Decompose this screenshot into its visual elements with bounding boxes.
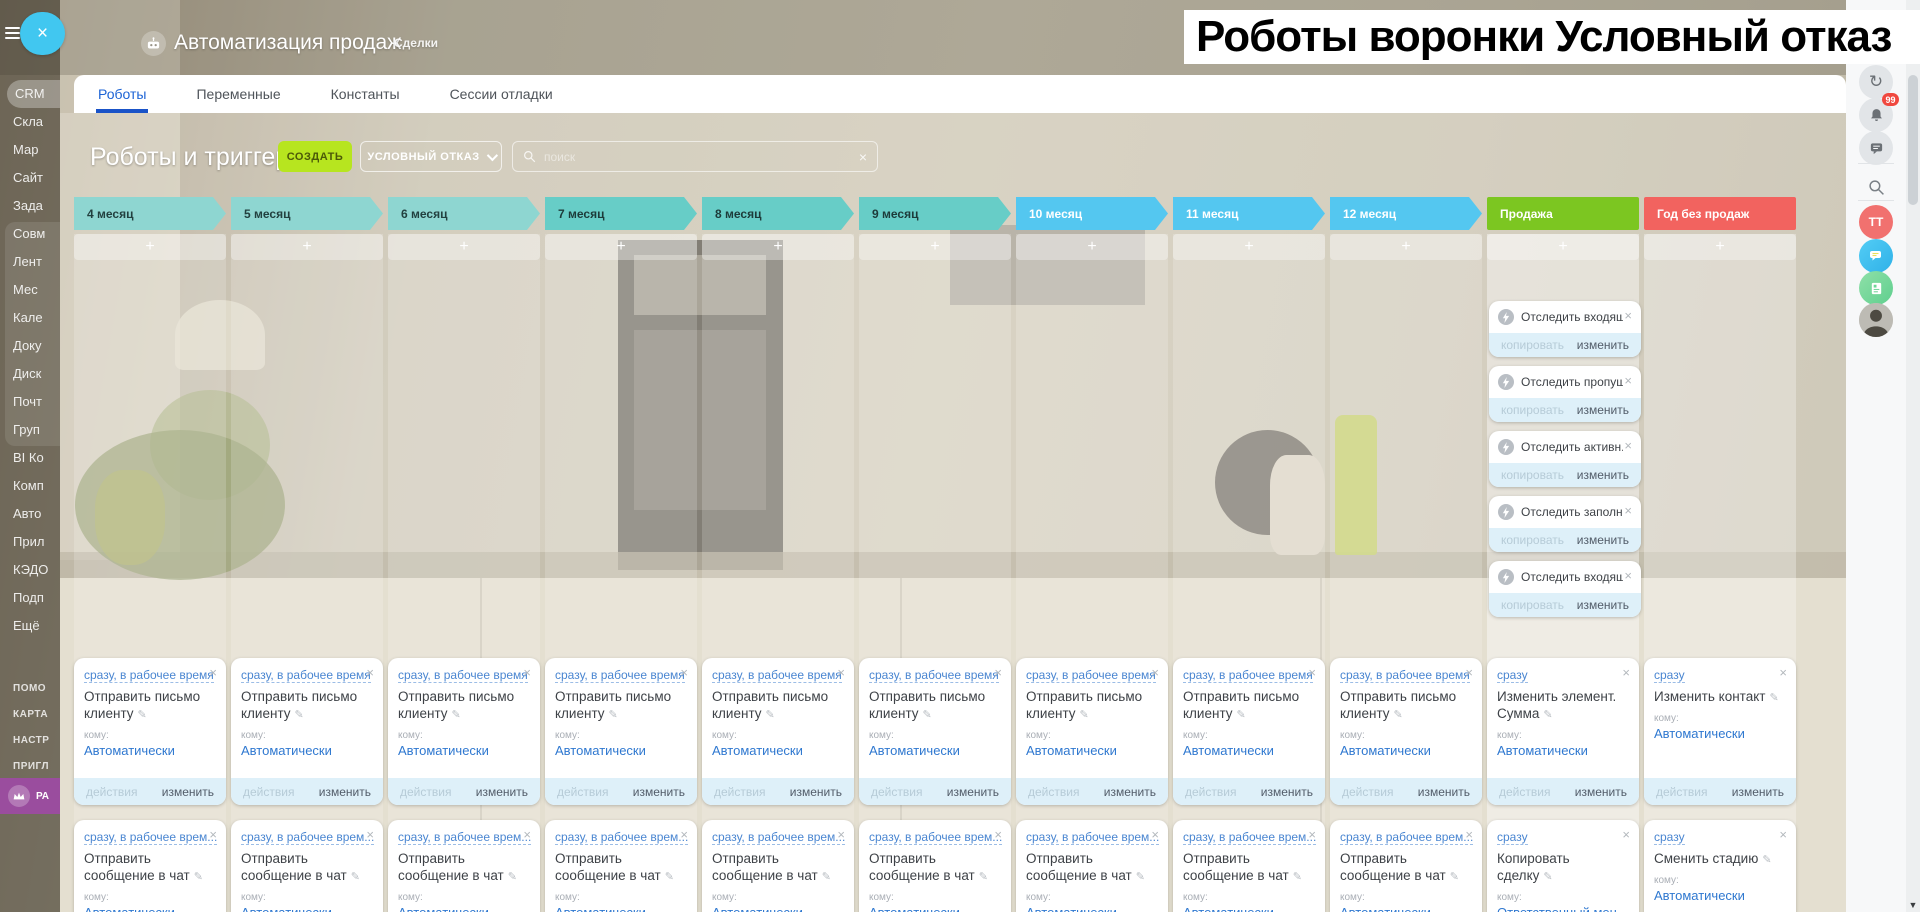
trigger-copy-link[interactable]: копировать [1501,403,1564,417]
edit-pencil-icon: ✎ [1450,871,1459,883]
rail-divider [1858,200,1894,201]
add-robot-button[interactable]: + [1016,234,1168,260]
trigger-icon [1498,374,1514,390]
sidebar-item[interactable]: Мес [0,276,60,304]
robot-to-value[interactable]: Автоматически [869,743,1001,758]
tab[interactable]: Роботы [96,75,148,113]
robot-card: сразу, в рабочее врем... Отправить сообщ… [74,820,226,912]
tab[interactable]: Константы [329,75,402,113]
robot-to-value[interactable]: Автоматически [1654,888,1786,903]
edit-pencil-icon: ✎ [1136,871,1145,883]
robot-card: сразу Сменить стадию✎ кому: Автоматическ… [1644,820,1796,912]
trigger-copy-link[interactable]: копировать [1501,468,1564,482]
robot-to-label: кому: [398,730,530,741]
sidebar-item[interactable]: Лент [0,248,60,276]
robot-when-link[interactable]: сразу, в рабочее врем... [1183,830,1316,845]
robot-action-title[interactable]: Отправить сообщение в чат✎ [1340,851,1472,885]
user-photo-avatar[interactable] [1859,303,1893,337]
robot-actions-link[interactable]: действия [1499,785,1550,799]
plus-icon: + [1401,239,1410,255]
robot-action-title[interactable]: Сменить стадию✎ [1654,851,1786,868]
robot-when-link[interactable]: сразу, в рабочее время [1183,668,1313,683]
robot-delete-icon[interactable]: × [1622,666,1630,679]
robot-when-link[interactable]: сразу, в рабочее врем... [84,830,217,845]
stage-pill: 12 месяц [1330,197,1482,230]
robot-card: сразу, в рабочее врем... Отправить сообщ… [1016,820,1168,912]
robot-delete-icon[interactable]: × [680,828,688,841]
robot-when-link[interactable]: сразу, в рабочее время [241,668,371,683]
add-robot-button[interactable]: + [1487,234,1639,260]
trigger-card-stack: Отследить входящ... × копировать изменит… [1489,301,1641,626]
robot-to-value[interactable]: Автоматически [712,905,844,912]
kanban-column [1330,234,1482,912]
robot-to-label: кому: [241,730,373,741]
edit-pencil-icon: ✎ [1080,709,1089,721]
plus-icon: + [302,239,311,255]
robot-card: сразу, в рабочее врем... Отправить сообщ… [545,820,697,912]
robot-to-label: кому: [398,892,530,903]
robot-actions-link[interactable]: действия [871,785,922,799]
robot-action-title[interactable]: Отправить письмо клиенту✎ [241,689,373,723]
trigger-delete-icon[interactable]: × [1624,374,1632,387]
add-robot-button[interactable]: + [74,234,226,260]
robot-to-value[interactable]: Автоматически [241,743,373,758]
robot-card: сразу Изменить элемент. Сумма✎ кому: Авт… [1487,658,1639,805]
robot-delete-icon[interactable]: × [523,828,531,841]
sidebar-item[interactable]: Груп [0,416,60,444]
add-robot-row: +++++++++++ [74,234,1796,260]
robot-card: сразу, в рабочее врем... Отправить сообщ… [1330,820,1482,912]
robot-actions-link[interactable]: действия [400,785,451,799]
robot-action-title[interactable]: Отправить сообщение в чат✎ [1026,851,1158,885]
robot-card: сразу, в рабочее время Отправить письмо … [231,658,383,805]
robot-when-link[interactable]: сразу, в рабочее врем... [555,830,688,845]
trigger-edit-link[interactable]: изменить [1577,403,1629,417]
scroll-down-arrow[interactable]: ▼ [1906,900,1920,910]
app-window: CRMСклаМарСайтЗадаСовмЛентМесКалеДокуДис… [0,0,1920,912]
robot-to-label: кому: [712,730,844,741]
robot-to-label: кому: [1497,892,1629,903]
edit-pencil-icon: ✎ [822,871,831,883]
robot-to-value[interactable]: Автоматически [1340,905,1472,912]
robot-action-text: Отправить сообщение в чат [712,851,818,883]
tabs-bar: РоботыПеременныеКонстантыСессии отладки [74,75,1846,113]
trigger-copy-link[interactable]: копировать [1501,598,1564,612]
robot-to-value[interactable]: Автоматически [1497,743,1629,758]
sidebar-footer-item[interactable]: НАСТР [0,728,60,754]
trigger-edit-link[interactable]: изменить [1577,468,1629,482]
robot-delete-icon[interactable]: × [366,828,374,841]
edit-pencil-icon: ✎ [609,709,618,721]
robot-delete-icon[interactable]: × [523,666,531,679]
add-robot-button[interactable]: + [859,234,1011,260]
crown-icon [8,785,30,807]
chat-lines-icon[interactable] [1859,131,1893,165]
robot-to-label: кому: [1497,730,1629,741]
right-icon-rail: ↻ 99 TT [1846,0,1906,912]
sidebar-item[interactable]: Ещё [0,612,60,640]
trigger-card: Отследить пропущ... × копировать изменит… [1489,366,1641,422]
robot-when-link[interactable]: сразу [1497,830,1528,845]
trigger-delete-icon[interactable]: × [1624,504,1632,517]
edit-pencil-icon: ✎ [1237,709,1246,721]
robot-when-link[interactable]: сразу, в рабочее время [1026,668,1156,683]
robot-to-value[interactable]: Автоматически [1340,743,1472,758]
trigger-edit-link[interactable]: изменить [1577,533,1629,547]
sidebar-item[interactable]: Сайт [0,164,60,192]
edit-pencil-icon: ✎ [351,871,360,883]
robot-actions-link[interactable]: действия [243,785,294,799]
robot-delete-icon[interactable]: × [1151,666,1159,679]
robot-edit-link[interactable]: изменить [476,785,528,799]
sidebar-item[interactable]: Почт [0,388,60,416]
robot-action-text: Отправить сообщение в чат [398,851,504,883]
trigger-edit-link[interactable]: изменить [1577,598,1629,612]
trigger-delete-icon[interactable]: × [1624,569,1632,582]
robot-edit-link[interactable]: изменить [1418,785,1470,799]
sidebar-item[interactable]: CRM [7,80,60,108]
robot-when-link[interactable]: сразу, в рабочее время [712,668,842,683]
robot-action-text: Отправить сообщение в чат [1026,851,1132,883]
robot-to-value[interactable]: Автоматически [555,905,687,912]
robot-when-link[interactable]: сразу, в рабочее время [869,668,999,683]
robot-to-value[interactable]: Автоматически [398,905,530,912]
search-input[interactable] [544,150,851,164]
robot-to-value[interactable]: Автоматически [1183,743,1315,758]
scrollbar-thumb[interactable] [1908,75,1918,205]
robot-when-link[interactable]: сразу, в рабочее время [555,668,685,683]
tariff-promo-banner[interactable]: РА [0,778,60,814]
robot-when-link[interactable]: сразу [1497,668,1528,683]
kanban-column [702,234,854,912]
entity-label[interactable]: Сделки [394,36,438,50]
robot-when-link[interactable]: сразу, в рабочее врем... [869,830,1002,845]
kanban-column [74,234,226,912]
robot-to-label: кому: [84,730,216,741]
robot-action-title[interactable]: Отправить письмо клиенту✎ [398,689,530,723]
robot-action-title[interactable]: Отправить письмо клиенту✎ [712,689,844,723]
sidebar-footer-item[interactable]: КАРТА [0,702,60,728]
robot-delete-icon[interactable]: × [1779,828,1787,841]
search-box: × [512,141,878,172]
rail-divider [1858,163,1894,164]
robot-action-title[interactable]: Отправить сообщение в чат✎ [869,851,1001,885]
robot-to-value[interactable]: Автоматически [398,743,530,758]
trigger-copy-link[interactable]: копировать [1501,338,1564,352]
robot-action-text: Отправить сообщение в чат [84,851,190,883]
robot-delete-icon[interactable]: × [837,666,845,679]
robot-action-text: Отправить сообщение в чат [1183,851,1289,883]
robot-when-link[interactable]: сразу, в рабочее врем... [1026,830,1159,845]
search-clear-icon[interactable]: × [859,149,867,165]
stage-pill: 6 месяц [388,197,540,230]
robot-to-value[interactable]: Автоматически [712,743,844,758]
robot-delete-icon[interactable]: × [209,828,217,841]
scrollbar[interactable]: ▼ [1906,0,1920,912]
trigger-title[interactable]: Отследить заполн... [1521,505,1623,519]
robot-to-value[interactable]: Автоматически [84,905,216,912]
robot-action-text: Изменить элемент. Сумма [1497,689,1616,721]
rail-search-icon[interactable] [1859,170,1893,204]
robot-action-title[interactable]: Отправить сообщение в чат✎ [241,851,373,885]
stage-pill: 11 месяц [1173,197,1325,230]
robot-to-value[interactable]: Автоматически [555,743,687,758]
kanban-column [231,234,383,912]
robot-edit-link[interactable]: изменить [1261,785,1313,799]
sidebar-item[interactable]: КЭДО [0,556,60,584]
robot-when-link[interactable]: сразу, в рабочее время [1340,668,1470,683]
robot-delete-icon[interactable]: × [1779,666,1787,679]
robot-action-title[interactable]: Отправить сообщение в чат✎ [1183,851,1315,885]
funnel-selector[interactable]: УСЛОВНЫЙ ОТКАЗ [360,141,502,172]
plus-icon: + [1558,239,1567,255]
robot-action-title[interactable]: Отправить письмо клиенту✎ [1340,689,1472,723]
robot-to-value[interactable]: Автоматически [241,905,373,912]
robot-actions-link[interactable]: действия [1185,785,1236,799]
robot-card: сразу, в рабочее врем... Отправить сообщ… [1173,820,1325,912]
sidebar-item[interactable]: Скла [0,108,60,136]
plus-icon: + [773,239,782,255]
trigger-card: Отследить активн... × копировать изменит… [1489,431,1641,487]
board-toolbar: Роботы и триггеры СОЗДАТЬ УСЛОВНЫЙ ОТКАЗ… [60,113,1846,198]
robot-card: сразу, в рабочее врем... Отправить сообщ… [231,820,383,912]
robot-action-title[interactable]: Отправить письмо клиенту✎ [555,689,687,723]
robot-delete-icon[interactable]: × [1622,828,1630,841]
notifications-badge: 99 [1882,93,1899,106]
chevron-down-icon [486,149,497,160]
robot-to-label: кому: [1183,730,1315,741]
robot-delete-icon[interactable]: × [209,666,217,679]
plus-icon: + [1715,239,1724,255]
robot-actions-link[interactable]: действия [1656,785,1707,799]
edit-pencil-icon: ✎ [1769,692,1778,704]
sidebar-item[interactable]: Доку [0,332,60,360]
trigger-title[interactable]: Отследить активн... [1521,440,1623,454]
trigger-icon [1498,504,1514,520]
trigger-edit-link[interactable]: изменить [1577,338,1629,352]
robot-when-link[interactable]: сразу, в рабочее время [398,668,528,683]
robot-card: сразу, в рабочее время Отправить письмо … [545,658,697,805]
plus-icon: + [1244,239,1253,255]
robot-when-link[interactable]: сразу [1654,668,1685,683]
robot-card: сразу, в рабочее время Отправить письмо … [1016,658,1168,805]
edit-pencil-icon: ✎ [923,709,932,721]
robot-delete-icon[interactable]: × [994,828,1002,841]
sidebar-item[interactable]: Авто [0,500,60,528]
robot-to-value[interactable]: Автоматически [84,743,216,758]
robot-to-label: кому: [869,730,1001,741]
robot-delete-icon[interactable]: × [680,666,688,679]
robot-action-text: Отправить сообщение в чат [1340,851,1446,883]
trigger-title[interactable]: Отследить входящ... [1521,570,1623,584]
trigger-delete-icon[interactable]: × [1624,309,1632,322]
robot-when-link[interactable]: сразу, в рабочее время [84,668,214,683]
robot-when-link[interactable]: сразу, в рабочее врем... [712,830,845,845]
robot-action-title[interactable]: Изменить элемент. Сумма✎ [1497,689,1629,723]
add-robot-button[interactable]: + [702,234,854,260]
edit-pencil-icon: ✎ [194,871,203,883]
sidebar-item[interactable]: Зада [0,192,60,220]
robot-edit-link[interactable]: изменить [1104,785,1156,799]
robot-row-1: сразу, в рабочее время Отправить письмо … [74,658,1796,805]
robot-actions-link[interactable]: действия [86,785,137,799]
trigger-title[interactable]: Отследить входящ... [1521,310,1623,324]
robot-actions-link[interactable]: действия [1028,785,1079,799]
robot-delete-icon[interactable]: × [1465,666,1473,679]
sidebar-item[interactable]: Диск [0,360,60,388]
sidebar-item[interactable]: Комп [0,472,60,500]
robot-action-title[interactable]: Отправить письмо клиенту✎ [1183,689,1315,723]
messenger-icon[interactable] [1859,239,1893,273]
robot-delete-icon[interactable]: × [366,666,374,679]
menu-hamburger-icon[interactable] [5,27,20,42]
robot-card: сразу, в рабочее врем... Отправить сообщ… [388,820,540,912]
robot-delete-icon[interactable]: × [994,666,1002,679]
robot-delete-icon[interactable]: × [1465,828,1473,841]
robot-to-value[interactable]: Автоматически [1026,905,1158,912]
robot-card: сразу Копировать сделку✎ кому: Ответстве… [1487,820,1639,912]
left-sidebar: CRMСклаМарСайтЗадаСовмЛентМесКалеДокуДис… [0,0,60,912]
stage-pill: 4 месяц [74,197,226,230]
robot-to-label: кому: [1026,892,1158,903]
robot-delete-icon[interactable]: × [837,828,845,841]
add-robot-button[interactable]: + [1173,234,1325,260]
create-button[interactable]: СОЗДАТЬ [278,141,352,172]
trigger-copy-link[interactable]: копировать [1501,533,1564,547]
robot-to-value[interactable]: Автоматически [1026,743,1158,758]
robot-to-value[interactable]: Автоматически [869,905,1001,912]
robot-to-label: кому: [555,730,687,741]
stage-pill: 9 месяц [859,197,1011,230]
kanban-column [1644,234,1796,912]
robot-to-label: кому: [1340,730,1472,741]
robot-when-link[interactable]: сразу [1654,830,1685,845]
edit-pencil-icon: ✎ [295,709,304,721]
robot-action-title[interactable]: Отправить письмо клиенту✎ [869,689,1001,723]
sidebar-footer-item[interactable]: ПОМО [0,676,60,702]
robot-card: сразу, в рабочее время Отправить письмо … [74,658,226,805]
robot-card: сразу, в рабочее время Отправить письмо … [1330,658,1482,805]
news-feed-icon[interactable] [1859,271,1893,305]
sidebar-item[interactable]: Прил [0,528,60,556]
robot-action-title[interactable]: Отправить сообщение в чат✎ [84,851,216,885]
robot-action-title[interactable]: Отправить письмо клиенту✎ [1026,689,1158,723]
robot-card: сразу, в рабочее время Отправить письмо … [388,658,540,805]
add-robot-button[interactable]: + [388,234,540,260]
stage-pill: 10 месяц [1016,197,1168,230]
close-slider-button[interactable]: × [20,12,65,55]
robot-delete-icon[interactable]: × [1151,828,1159,841]
promo-label: РА [36,791,49,802]
robot-to-label: кому: [712,892,844,903]
sidebar-item[interactable]: BI Ко [0,444,60,472]
plus-icon: + [930,239,939,255]
robot-actions-link[interactable]: действия [557,785,608,799]
robot-when-link[interactable]: сразу, в рабочее врем... [241,830,374,845]
add-robot-button[interactable]: + [231,234,383,260]
robot-to-value[interactable]: Автоматически [1183,905,1315,912]
robot-delete-icon[interactable]: × [1308,666,1316,679]
robot-to-value[interactable]: Автоматически [1654,726,1786,741]
robot-actions-link[interactable]: действия [1342,785,1393,799]
edit-pencil-icon: ✎ [766,709,775,721]
sidebar-item[interactable]: Подп [0,584,60,612]
screenshot-caption: Роботы воронки Условный отказ [1184,10,1920,64]
trigger-title[interactable]: Отследить пропущ... [1521,375,1623,389]
robot-edit-link[interactable]: изменить [947,785,999,799]
robot-action-text: Отправить сообщение в чат [869,851,975,883]
robot-edit-link[interactable]: изменить [162,785,214,799]
robot-action-title[interactable]: Отправить сообщение в чат✎ [398,851,530,885]
robot-action-text: Сменить стадию [1654,851,1758,866]
kanban-column [859,234,1011,912]
robot-action-text: Отправить сообщение в чат [241,851,347,883]
robot-card: сразу, в рабочее врем... Отправить сообщ… [702,820,854,912]
robot-edit-link[interactable]: изменить [790,785,842,799]
edit-pencil-icon: ✎ [1543,709,1552,721]
robot-actions-link[interactable]: действия [714,785,765,799]
stage-pill: 8 месяц [702,197,854,230]
edit-pencil-icon: ✎ [665,871,674,883]
robot-action-title[interactable]: Изменить контакт✎ [1654,689,1786,706]
edit-pencil-icon: ✎ [508,871,517,883]
sidebar-item[interactable]: Совм [0,220,60,248]
trigger-delete-icon[interactable]: × [1624,439,1632,452]
robot-to-label: кому: [1654,875,1786,886]
robot-card: сразу, в рабочее врем... Отправить сообщ… [859,820,1011,912]
robot-edit-link[interactable]: изменить [319,785,371,799]
kanban-column [388,234,540,912]
robot-action-text: Изменить контакт [1654,689,1765,704]
stage-row: 4 месяц5 месяц6 месяц7 месяц8 месяц9 мес… [74,197,1796,230]
robot-to-label: кому: [1183,892,1315,903]
robot-icon [141,31,166,56]
add-robot-button[interactable]: + [1330,234,1482,260]
tab[interactable]: Переменные [194,75,282,113]
robot-to-value[interactable]: Ответственный мен... [1497,905,1629,912]
robot-action-text: Копировать сделку [1497,851,1570,883]
robot-action-title[interactable]: Отправить письмо клиенту✎ [84,689,216,723]
robot-action-title[interactable]: Копировать сделку✎ [1497,851,1629,885]
page-title: Автоматизация продаж [174,31,401,55]
robot-delete-icon[interactable]: × [1308,828,1316,841]
edit-pencil-icon: ✎ [1543,871,1552,883]
sidebar-item[interactable]: Мар [0,136,60,164]
trigger-icon [1498,439,1514,455]
robot-edit-link[interactable]: изменить [1732,785,1784,799]
plus-icon: + [145,239,154,255]
profile-avatar[interactable]: TT [1859,205,1893,239]
stage-pill: 7 месяц [545,197,697,230]
tab[interactable]: Сессии отладки [448,75,555,113]
search-icon [523,150,536,163]
robot-when-link[interactable]: сразу, в рабочее врем... [1340,830,1473,845]
robot-action-title[interactable]: Отправить сообщение в чат✎ [555,851,687,885]
robot-when-link[interactable]: сразу, в рабочее врем... [398,830,531,845]
add-robot-button[interactable]: + [545,234,697,260]
stage-pill: 5 месяц [231,197,383,230]
robot-edit-link[interactable]: изменить [1575,785,1627,799]
robot-edit-link[interactable]: изменить [633,785,685,799]
robot-to-label: кому: [869,892,1001,903]
kanban-column [1016,234,1168,912]
add-robot-button[interactable]: + [1644,234,1796,260]
robot-action-title[interactable]: Отправить сообщение в чат✎ [712,851,844,885]
sidebar-footer-item[interactable]: ПРИГЛ [0,754,60,780]
kanban-column [545,234,697,912]
sidebar-item[interactable]: Кале [0,304,60,332]
stage-pill: Продажа [1487,197,1639,230]
